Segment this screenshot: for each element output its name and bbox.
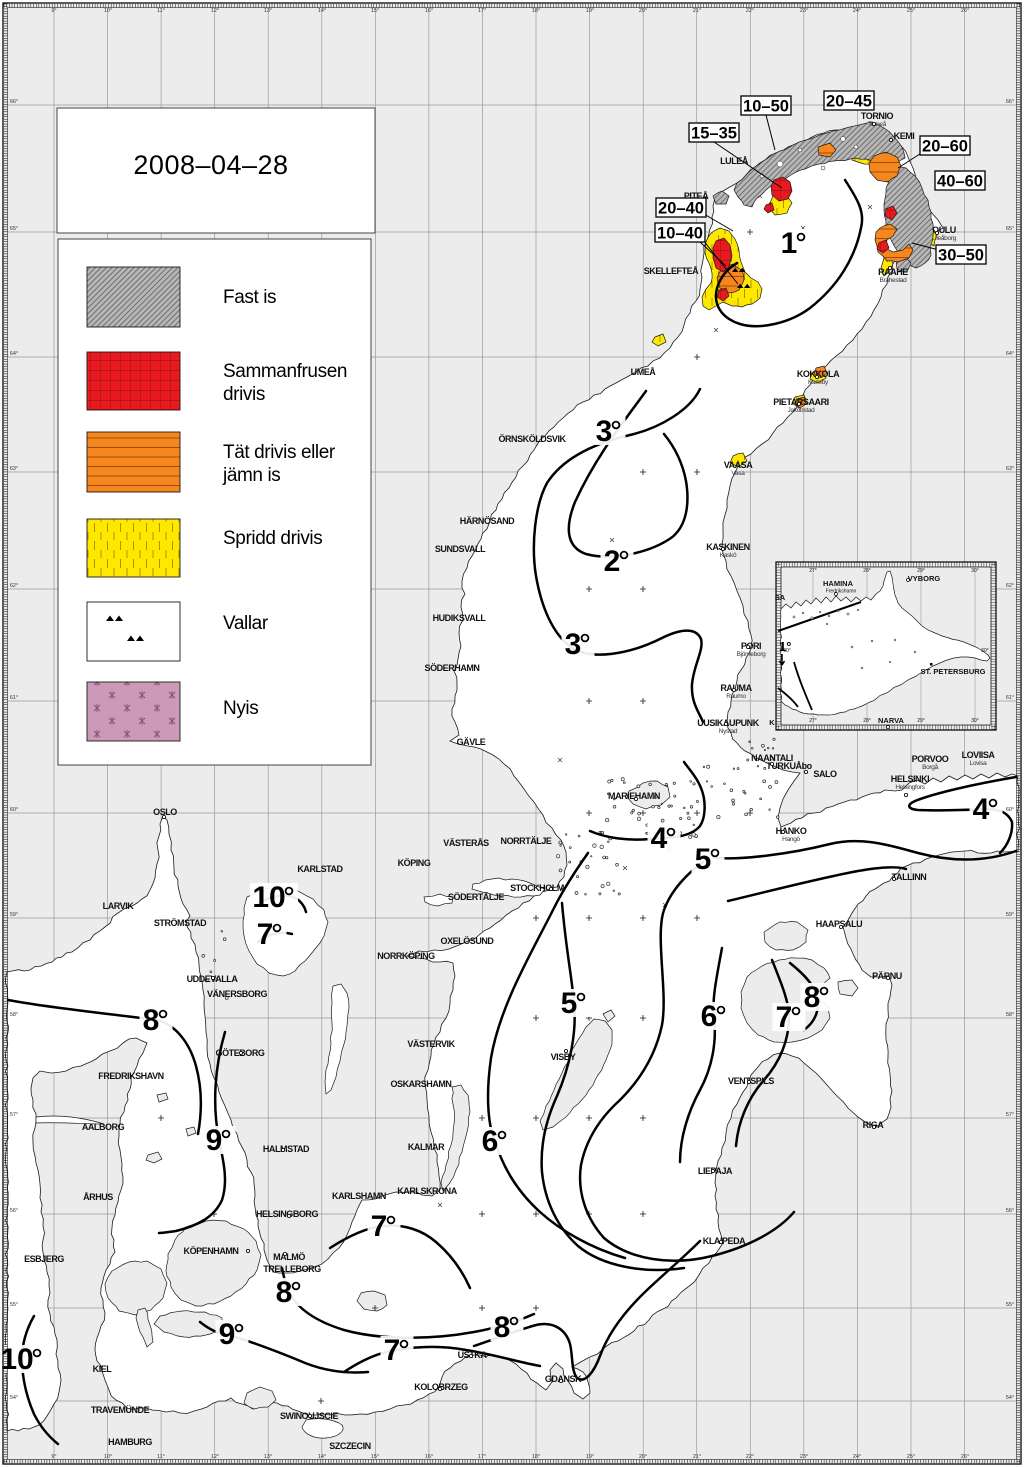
- svg-text:4: 4: [973, 793, 990, 826]
- svg-text:25°: 25°: [907, 1454, 915, 1460]
- svg-text:28°: 28°: [863, 568, 871, 574]
- svg-text:9: 9: [219, 1318, 236, 1351]
- svg-text:Spridd drivis: Spridd drivis: [223, 528, 322, 549]
- svg-text:SÖDERHAMN: SÖDERHAMN: [425, 663, 480, 673]
- svg-text:2008–04–28: 2008–04–28: [133, 150, 288, 180]
- svg-text:60°: 60°: [783, 648, 791, 654]
- svg-text:7: 7: [371, 1210, 388, 1243]
- svg-text:66°: 66°: [1006, 99, 1014, 105]
- svg-text:VAASA: VAASA: [724, 460, 754, 470]
- svg-text:Björneborg: Björneborg: [737, 651, 766, 658]
- svg-text:64°: 64°: [1006, 351, 1014, 357]
- svg-text:Vasa: Vasa: [731, 470, 745, 477]
- svg-text:NARVA: NARVA: [878, 716, 905, 725]
- svg-text:TALLINN: TALLINN: [892, 872, 927, 882]
- svg-text:21°: 21°: [693, 1454, 701, 1460]
- svg-text:K: K: [769, 718, 775, 727]
- svg-text:SALO: SALO: [813, 769, 837, 779]
- svg-text:9°: 9°: [51, 8, 56, 14]
- svg-text:65°: 65°: [10, 226, 18, 232]
- svg-text:KARLSKRONA: KARLSKRONA: [397, 1186, 457, 1196]
- svg-text:UMEÅ: UMEÅ: [631, 367, 657, 377]
- svg-text:10: 10: [252, 881, 285, 914]
- svg-text:19°: 19°: [586, 8, 594, 14]
- svg-text:HAMBURG: HAMBURG: [108, 1437, 152, 1447]
- svg-text:VYBORG: VYBORG: [908, 574, 941, 583]
- svg-text:23°: 23°: [800, 1454, 808, 1460]
- svg-text:HELSINGBORG: HELSINGBORG: [256, 1209, 319, 1219]
- svg-text:ESBJERG: ESBJERG: [24, 1254, 64, 1264]
- svg-text:56°: 56°: [1006, 1208, 1014, 1214]
- svg-text:HUDIKSVALL: HUDIKSVALL: [433, 613, 487, 623]
- svg-text:Lovisa: Lovisa: [970, 760, 988, 767]
- svg-text:GÄVLE: GÄVLE: [457, 737, 486, 747]
- svg-text:PIETARSAARI: PIETARSAARI: [773, 397, 828, 407]
- svg-text:20–45: 20–45: [826, 93, 872, 111]
- svg-text:Vallar: Vallar: [223, 613, 269, 634]
- svg-text:Tät drivis eller: Tät drivis eller: [223, 442, 336, 463]
- svg-text:LIEPAJA: LIEPAJA: [698, 1166, 733, 1176]
- svg-text:55°: 55°: [1006, 1302, 1014, 1308]
- svg-text:66°: 66°: [10, 99, 18, 105]
- svg-text:KASKINEN: KASKINEN: [706, 542, 749, 552]
- svg-text:10–50: 10–50: [743, 98, 789, 116]
- svg-text:FREDRIKSHAVN: FREDRIKSHAVN: [98, 1071, 163, 1081]
- svg-text:UUSIKAUPUNK: UUSIKAUPUNK: [697, 718, 760, 728]
- svg-text:57°: 57°: [1006, 1112, 1014, 1118]
- svg-text:STRÖMSTAD: STRÖMSTAD: [154, 918, 207, 928]
- svg-text:Nyis: Nyis: [223, 698, 258, 719]
- svg-text:Uleåborg: Uleåborg: [932, 234, 957, 242]
- svg-text:29°: 29°: [917, 718, 925, 724]
- svg-text:30°: 30°: [971, 718, 979, 724]
- svg-text:KARLSTAD: KARLSTAD: [297, 864, 343, 874]
- svg-text:11°: 11°: [157, 1454, 165, 1460]
- svg-text:54°: 54°: [10, 1395, 18, 1401]
- svg-text:Karleby: Karleby: [808, 379, 829, 386]
- svg-text:SÖDERTÄLJE: SÖDERTÄLJE: [448, 892, 504, 902]
- svg-text:7: 7: [257, 918, 274, 951]
- svg-text:17°: 17°: [478, 8, 486, 14]
- svg-text:60°: 60°: [981, 648, 989, 654]
- svg-text:8: 8: [494, 1311, 511, 1344]
- svg-text:6: 6: [482, 1125, 499, 1158]
- svg-text:HAAPSALU: HAAPSALU: [816, 919, 862, 929]
- svg-text:58°: 58°: [1006, 1012, 1014, 1018]
- svg-text:LULEÅ: LULEÅ: [720, 156, 749, 166]
- svg-text:ST. PETERSBURG: ST. PETERSBURG: [920, 667, 985, 676]
- svg-text:30–50: 30–50: [938, 247, 984, 265]
- svg-text:22°: 22°: [746, 8, 754, 14]
- svg-text:60°: 60°: [1006, 807, 1014, 813]
- svg-text:15°: 15°: [371, 8, 379, 14]
- svg-text:RAAHE: RAAHE: [878, 267, 908, 277]
- svg-text:59°: 59°: [1006, 912, 1014, 918]
- svg-text:drivis: drivis: [223, 384, 265, 405]
- svg-text:10°: 10°: [104, 8, 112, 14]
- svg-text:MALMÖ: MALMÖ: [273, 1252, 305, 1262]
- svg-text:63°: 63°: [1006, 466, 1014, 472]
- svg-text:KEMI: KEMI: [894, 131, 915, 141]
- svg-text:OXELÖSUND: OXELÖSUND: [441, 936, 495, 946]
- svg-text:62°: 62°: [10, 583, 18, 589]
- svg-text:25°: 25°: [907, 8, 915, 14]
- svg-text:59°: 59°: [10, 912, 18, 918]
- svg-text:22°: 22°: [746, 1454, 754, 1460]
- svg-text:NORRKÖPING: NORRKÖPING: [377, 951, 435, 961]
- svg-text:SKELLEFTEÅ: SKELLEFTEÅ: [644, 266, 699, 276]
- svg-text:28°: 28°: [863, 718, 871, 724]
- svg-text:10°: 10°: [104, 1454, 112, 1460]
- svg-text:KÖPENHAMN: KÖPENHAMN: [184, 1246, 239, 1256]
- svg-text:RAUMA: RAUMA: [720, 683, 752, 693]
- svg-text:61°: 61°: [10, 695, 18, 701]
- svg-text:20°: 20°: [639, 8, 647, 14]
- svg-text:TORNIO: TORNIO: [861, 111, 894, 121]
- svg-text:AALBORG: AALBORG: [82, 1122, 125, 1132]
- svg-text:HALMSTAD: HALMSTAD: [263, 1144, 310, 1154]
- svg-text:VISBY: VISBY: [551, 1052, 576, 1062]
- svg-text:60°: 60°: [10, 807, 18, 813]
- svg-text:KLAIPEDA: KLAIPEDA: [703, 1236, 746, 1246]
- svg-text:STOCKHOLM: STOCKHOLM: [510, 883, 564, 893]
- svg-text:1: 1: [781, 227, 798, 260]
- svg-text:64°: 64°: [10, 351, 18, 357]
- svg-text:KIEL: KIEL: [93, 1364, 113, 1374]
- svg-text:ÖRNSKÖLDSVIK: ÖRNSKÖLDSVIK: [498, 434, 566, 444]
- svg-text:12°: 12°: [211, 1454, 219, 1460]
- svg-text:65°: 65°: [1006, 226, 1014, 232]
- svg-text:Helsingfors: Helsingfors: [895, 784, 925, 791]
- svg-text:18°: 18°: [532, 1454, 540, 1460]
- svg-text:20–60: 20–60: [922, 138, 968, 156]
- svg-text:KÖPING: KÖPING: [398, 858, 431, 868]
- svg-text:63°: 63°: [10, 466, 18, 472]
- svg-text:PORVOO: PORVOO: [912, 754, 949, 764]
- svg-text:14°: 14°: [318, 1454, 326, 1460]
- svg-text:5: 5: [561, 987, 578, 1020]
- svg-text:Borgå: Borgå: [922, 763, 939, 771]
- svg-text:40–60: 40–60: [937, 173, 983, 191]
- svg-text:5: 5: [695, 843, 712, 876]
- svg-text:ÅRHUS: ÅRHUS: [83, 1192, 113, 1202]
- svg-text:Jakobstad: Jakobstad: [788, 407, 816, 414]
- svg-text:3: 3: [565, 628, 582, 661]
- svg-text:GDANSK: GDANSK: [545, 1374, 582, 1384]
- svg-text:4: 4: [651, 822, 668, 855]
- svg-text:3: 3: [596, 415, 613, 448]
- svg-text:NORRTÄLJE: NORRTÄLJE: [501, 836, 552, 846]
- svg-text:Brahestad: Brahestad: [880, 277, 908, 284]
- svg-text:Hangö: Hangö: [782, 836, 800, 843]
- svg-text:6: 6: [701, 1000, 718, 1033]
- svg-text:7: 7: [776, 1001, 793, 1034]
- svg-text:Fast is: Fast is: [223, 287, 276, 308]
- svg-text:56°: 56°: [10, 1208, 18, 1214]
- svg-text:27°: 27°: [809, 718, 817, 724]
- svg-text:13°: 13°: [264, 1454, 272, 1460]
- svg-text:12°: 12°: [211, 8, 219, 14]
- svg-text:KALMAR: KALMAR: [408, 1142, 445, 1152]
- svg-text:9°: 9°: [51, 1454, 56, 1460]
- svg-text:20–40: 20–40: [658, 200, 704, 218]
- svg-text:20°: 20°: [639, 1454, 647, 1460]
- svg-text:30°: 30°: [971, 568, 979, 574]
- svg-text:10–40: 10–40: [657, 225, 703, 243]
- svg-text:21°: 21°: [693, 8, 701, 14]
- svg-text:8: 8: [276, 1276, 293, 1309]
- svg-text:LARVIK: LARVIK: [103, 901, 135, 911]
- svg-text:PORI: PORI: [741, 641, 761, 651]
- svg-text:LOVIISA: LOVIISA: [962, 750, 996, 760]
- svg-text:26°: 26°: [961, 1454, 969, 1460]
- svg-text:Sammanfrusen: Sammanfrusen: [223, 361, 347, 382]
- svg-text:17°: 17°: [478, 1454, 486, 1460]
- svg-text:23°: 23°: [800, 8, 808, 14]
- svg-text:VÄNERSBORG: VÄNERSBORG: [207, 989, 267, 999]
- svg-text:TRAVEMÜNDE: TRAVEMÜNDE: [91, 1405, 150, 1415]
- svg-text:KARLSHAMN: KARLSHAMN: [332, 1191, 386, 1201]
- svg-text:29°: 29°: [917, 568, 925, 574]
- svg-text:24°: 24°: [853, 8, 861, 14]
- svg-text:HÄRNÖSAND: HÄRNÖSAND: [460, 516, 515, 526]
- svg-text:HANKO: HANKO: [776, 826, 807, 836]
- svg-text:Nystad: Nystad: [719, 728, 738, 735]
- svg-text:15°: 15°: [371, 1454, 379, 1460]
- svg-text:57°: 57°: [10, 1112, 18, 1118]
- svg-text:8: 8: [804, 981, 821, 1014]
- svg-text:26°: 26°: [961, 8, 969, 14]
- svg-text:27°: 27°: [809, 568, 817, 574]
- svg-text:Raumo: Raumo: [726, 693, 746, 700]
- svg-text:jämn is: jämn is: [222, 465, 280, 486]
- svg-text:11°: 11°: [157, 8, 165, 14]
- svg-text:18°: 18°: [532, 8, 540, 14]
- svg-text:55°: 55°: [10, 1302, 18, 1308]
- svg-text:VENTSPILS: VENTSPILS: [728, 1076, 774, 1086]
- svg-text:13°: 13°: [264, 8, 272, 14]
- svg-text:16°: 16°: [425, 8, 433, 14]
- svg-text:7: 7: [384, 1334, 401, 1367]
- svg-text:54°: 54°: [1006, 1395, 1014, 1401]
- svg-text:Fredrikshamn: Fredrikshamn: [826, 589, 857, 595]
- svg-text:62°: 62°: [1006, 583, 1014, 589]
- svg-text:SUNDSVALL: SUNDSVALL: [435, 544, 486, 554]
- svg-text:14°: 14°: [318, 8, 326, 14]
- svg-text:9: 9: [206, 1124, 223, 1157]
- svg-text:8: 8: [143, 1004, 160, 1037]
- svg-text:MARIEHAMN: MARIEHAMN: [608, 791, 660, 801]
- svg-text:SZCZECIN: SZCZECIN: [329, 1441, 370, 1451]
- svg-text:Kaskö: Kaskö: [720, 552, 737, 559]
- svg-text:61°: 61°: [1006, 695, 1014, 701]
- svg-text:19°: 19°: [586, 1454, 594, 1460]
- svg-text:VÄSTERÅS: VÄSTERÅS: [443, 838, 489, 848]
- svg-text:2: 2: [604, 545, 621, 578]
- svg-text:58°: 58°: [10, 1012, 18, 1018]
- svg-text:HAMINA: HAMINA: [823, 579, 854, 588]
- svg-text:Torneå: Torneå: [868, 120, 887, 128]
- svg-text:TRELLEBORG: TRELLEBORG: [263, 1264, 321, 1274]
- svg-text:VÄSTERVIK: VÄSTERVIK: [407, 1039, 455, 1049]
- svg-text:16°: 16°: [425, 1454, 433, 1460]
- svg-text:OSKARSHAMN: OSKARSHAMN: [390, 1079, 451, 1089]
- svg-text:24°: 24°: [853, 1454, 861, 1460]
- svg-text:HELSINKI: HELSINKI: [891, 774, 929, 784]
- svg-text:15–35: 15–35: [691, 125, 737, 143]
